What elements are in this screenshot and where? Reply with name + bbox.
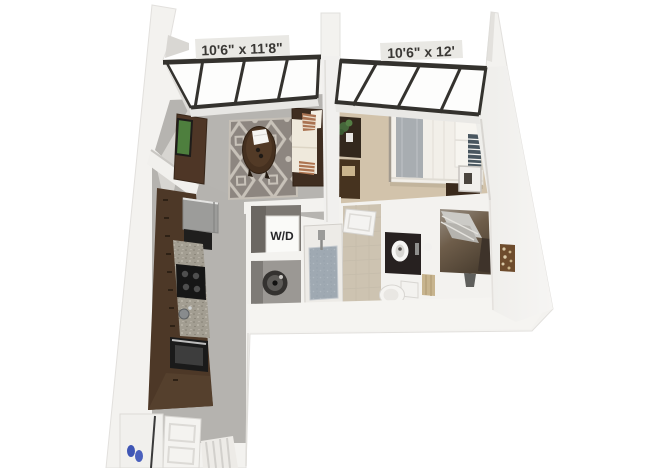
svg-text:W/D: W/D [270,229,294,243]
svg-text:10'6" x 12': 10'6" x 12' [387,43,455,61]
svg-text:10'6" x 11'8": 10'6" x 11'8" [201,40,283,59]
